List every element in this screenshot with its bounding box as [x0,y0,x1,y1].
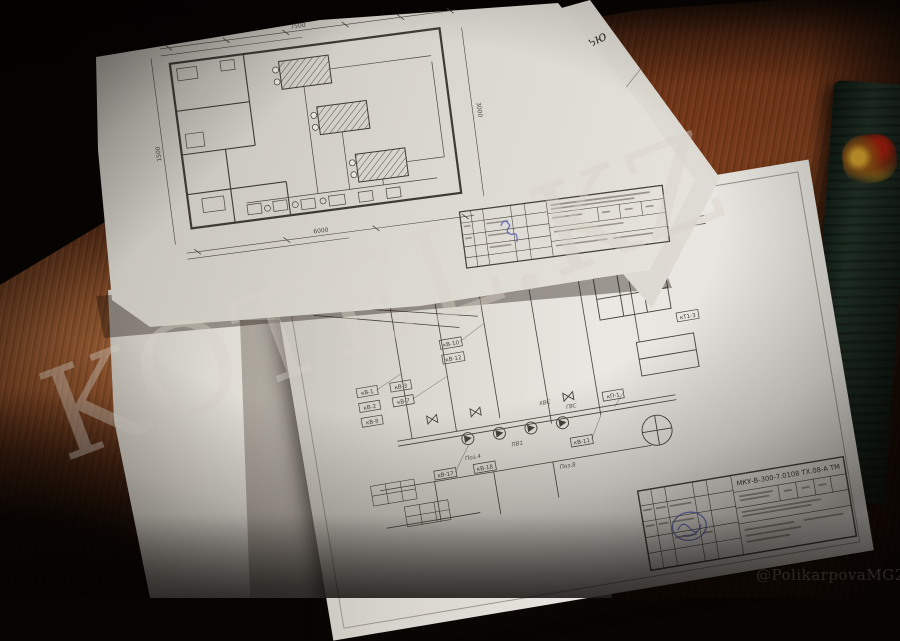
photo-blueprints-on-desk: { "watermark": { "text": "KOTEL.KZ" }, "… [0,0,900,598]
svg-text:ПВ1: ПВ1 [511,441,523,449]
spec-tables [370,474,451,532]
tag: кТ1-3 [676,309,699,322]
svg-text:ХВС: ХВС [538,399,551,407]
svg-text:7500: 7500 [290,22,306,31]
svg-text:кВ-18: кВ-18 [477,464,495,473]
svg-text:кТ1-3: кТ1-3 [679,313,696,322]
svg-text:Поз.8: Поз.8 [559,462,576,471]
svg-text:3000: 3000 [475,102,484,118]
tag: кВ-11 [570,435,593,448]
svg-text:ГВС: ГВС [566,403,578,411]
boiler-units [272,47,409,192]
svg-text:кВ-11: кВ-11 [573,438,591,447]
svg-text:кВ-17: кВ-17 [437,471,455,480]
svg-text:Поз.4: Поз.4 [465,454,482,463]
photographer-credit: @PolikarpovaMG2020 [756,566,900,584]
pumps-and-valves [427,392,579,451]
svg-text:кВ-8: кВ-8 [366,419,380,427]
svg-text:6000: 6000 [313,227,329,236]
tag: кП-1 [602,389,624,401]
svg-text:кП-1: кП-1 [606,392,620,400]
svg-text:1500: 1500 [155,146,164,162]
